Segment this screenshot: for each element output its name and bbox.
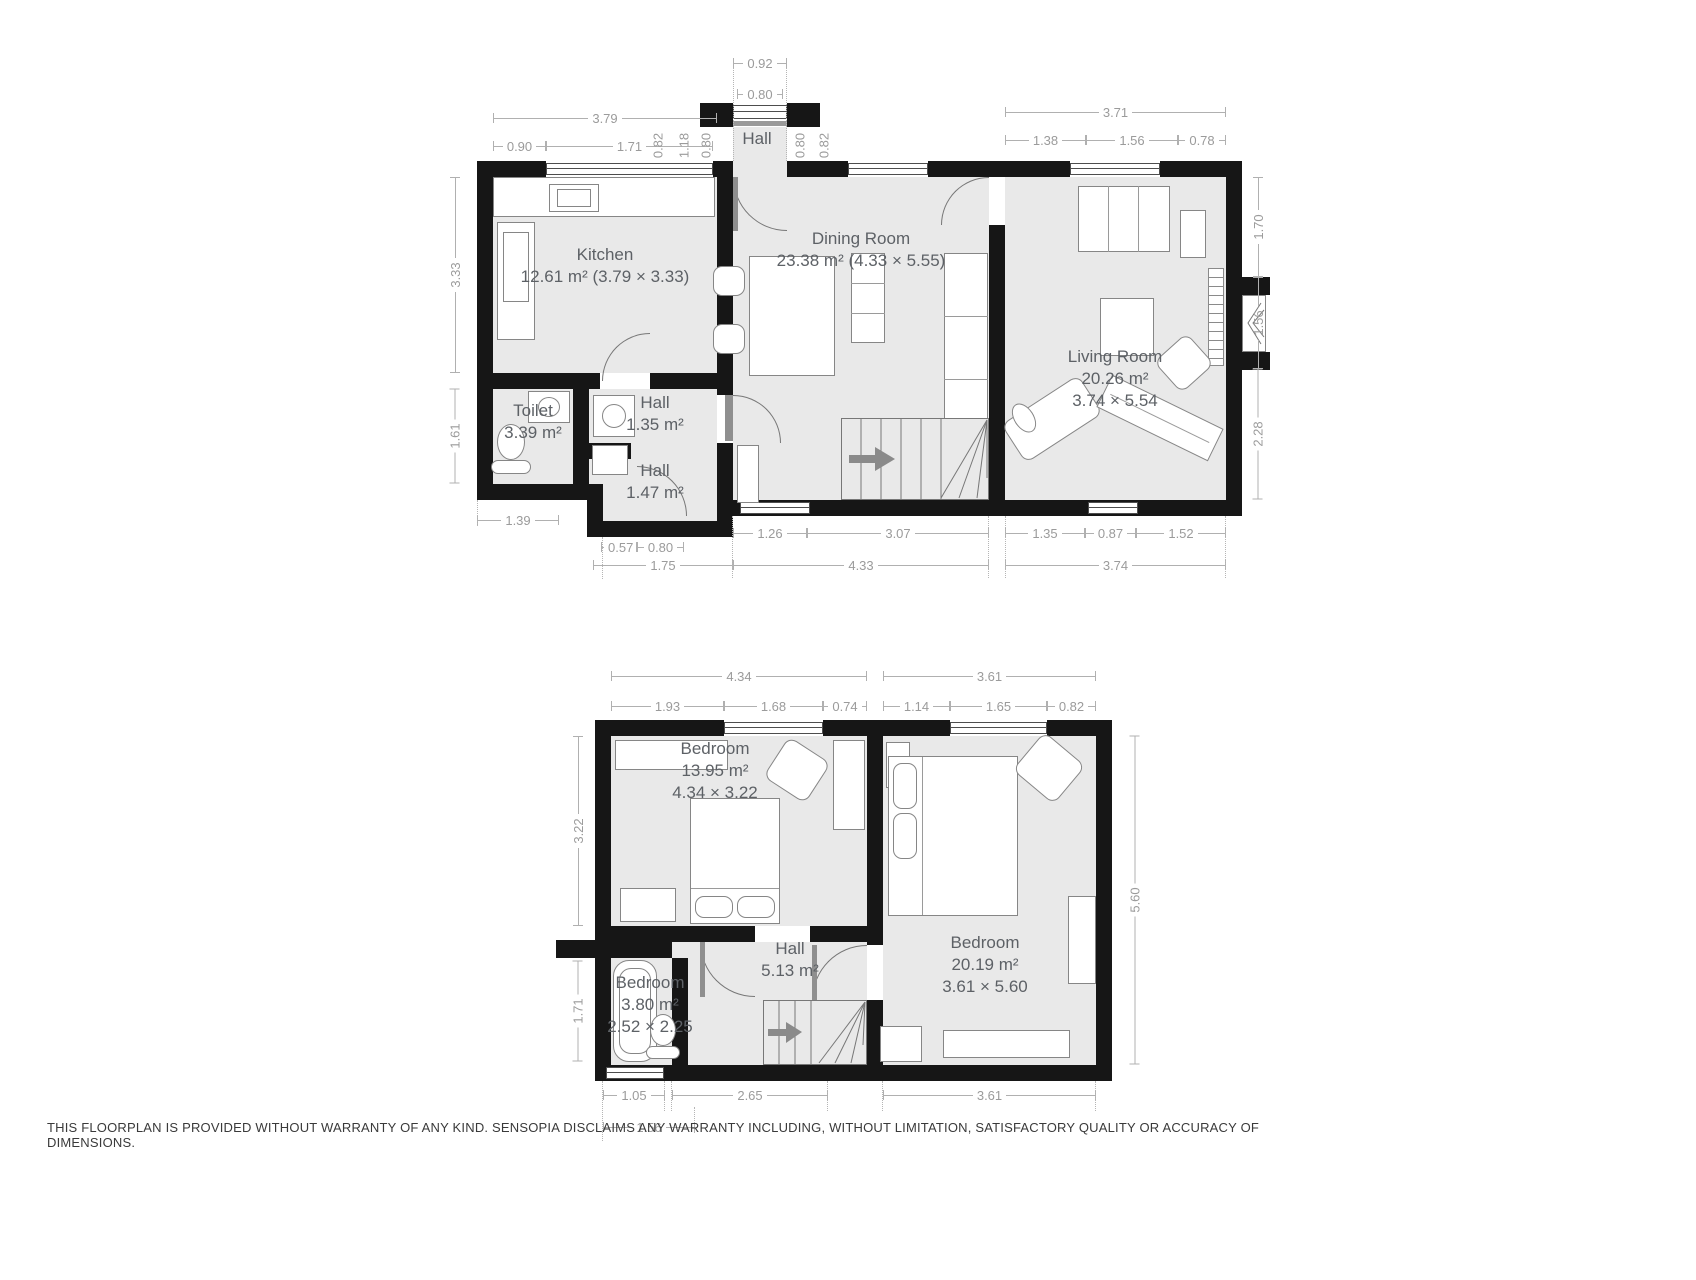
cabinet-line	[944, 379, 988, 380]
wall	[493, 373, 600, 389]
tall-cabinet	[944, 253, 988, 443]
dim-toilet-w: 1.39	[477, 512, 559, 528]
dim-d1: 1.05	[603, 1087, 665, 1103]
label-hall2: Hall 1.47 m²	[626, 460, 684, 504]
door-leaf	[733, 177, 738, 231]
window	[950, 722, 1047, 734]
dim-p2: 0.82	[817, 126, 832, 166]
dim-u-total1: 4.34	[611, 668, 867, 684]
dim-p1: 0.80	[793, 126, 808, 166]
extension-line	[882, 1081, 883, 1111]
wall	[1226, 161, 1242, 516]
room-area: 3.39 m²	[504, 422, 562, 444]
label-dining: Dining Room 23.38 m² (4.33 × 5.55)	[777, 228, 946, 272]
label-toilet: Toilet 3.39 m²	[504, 400, 562, 444]
dim-porch-inner: 0.80	[737, 86, 783, 102]
room-area: 3.80 m²	[607, 994, 693, 1016]
dim-u1: 1.93	[611, 698, 724, 714]
window	[1070, 163, 1160, 175]
extension-line	[602, 537, 603, 579]
pillow	[893, 763, 917, 809]
sofa-line	[1108, 186, 1109, 252]
dim-u3: 0.74	[823, 698, 867, 714]
dim-b7: 1.52	[1136, 525, 1226, 541]
door-leaf	[700, 942, 705, 997]
wall	[477, 161, 493, 500]
extension-line	[827, 1081, 828, 1111]
pillow	[695, 896, 733, 918]
room-name: Bedroom	[607, 972, 693, 994]
label-living: Living Room 20.26 m² 3.74 × 5.54	[1068, 346, 1163, 412]
dim-u2: 1.68	[724, 698, 823, 714]
extension-line	[671, 1081, 672, 1111]
room-size: 3.61 × 5.60	[942, 976, 1028, 998]
sofa	[1078, 186, 1170, 252]
dim-d3: 3.61	[883, 1087, 1096, 1103]
room-name: Bedroom	[942, 932, 1028, 954]
wall	[650, 373, 717, 389]
floorplan-page: Hall Kitchen 12.61 m² (3.79 × 3.33) Dini…	[0, 0, 1696, 1280]
wall	[928, 161, 1070, 177]
staircase	[841, 418, 989, 500]
dim-u-right1: 5.60	[1127, 736, 1143, 1065]
ottoman	[880, 1026, 922, 1062]
hall-cupboard	[592, 445, 628, 475]
dim-u5: 1.65	[950, 698, 1047, 714]
bed-line	[922, 757, 923, 915]
window	[1088, 502, 1138, 514]
room-area: 13.95 m²	[672, 760, 758, 782]
dim-b4: 3.07	[807, 525, 989, 541]
room-name: Kitchen	[521, 244, 690, 266]
room-area: 20.19 m²	[942, 954, 1028, 976]
extension-line	[988, 516, 989, 578]
wall	[823, 720, 950, 736]
window	[724, 722, 823, 734]
door-leaf	[725, 395, 733, 441]
label-bath: Bedroom 3.80 m² 2.52 × 2.25	[607, 972, 693, 1038]
wall	[595, 926, 755, 942]
dim-b3: 1.26	[733, 525, 807, 541]
sideboard-line	[851, 283, 885, 284]
wall	[595, 1065, 1112, 1081]
stair-cupboard	[737, 445, 759, 503]
dim-u-left1: 3.22	[570, 736, 586, 926]
dim-b5: 1.35	[1005, 525, 1085, 541]
kitchen-counter	[493, 177, 715, 217]
room-area: 20.26 m²	[1068, 368, 1163, 390]
dim-left2: 1.61	[447, 389, 463, 484]
disclaimer-text: THIS FLOORPLAN IS PROVIDED WITHOUT WARRA…	[47, 1120, 1347, 1150]
dim-bt3: 3.74	[1005, 557, 1226, 573]
toilet-base-icon	[646, 1046, 680, 1059]
room-name: Hall	[626, 460, 684, 482]
desk	[833, 740, 865, 830]
dim-d2: 2.65	[672, 1087, 828, 1103]
dim-bt2: 4.33	[733, 557, 989, 573]
room-name: Living Room	[1068, 346, 1163, 368]
dining-table	[749, 256, 835, 376]
dim-u6: 0.82	[1047, 698, 1096, 714]
dresser	[1068, 896, 1096, 984]
extension-line	[1225, 516, 1226, 578]
dim-lv1: 1.38	[1005, 132, 1086, 148]
sideboard-line	[851, 313, 885, 314]
dim-k5: 0.80	[699, 126, 714, 166]
dim-right3: 2.28	[1250, 369, 1266, 500]
dim-lv2: 1.56	[1086, 132, 1178, 148]
entry-lintel	[733, 121, 787, 126]
dim-b6: 0.87	[1085, 525, 1136, 541]
window	[848, 163, 928, 175]
sofa-line	[1138, 186, 1139, 252]
dim-b1: 0.57	[601, 539, 637, 555]
room-name: Bedroom	[672, 738, 758, 760]
dim-kitchen-total: 3.79	[493, 110, 717, 126]
wall	[595, 942, 672, 958]
kitchen-sink-basin	[557, 189, 591, 207]
pillow	[893, 813, 917, 859]
cabinet-line	[944, 316, 988, 317]
window	[606, 1067, 664, 1079]
label-bedroom1: Bedroom 13.95 m² 4.34 × 3.22	[672, 738, 758, 804]
dim-lv3: 0.78	[1178, 132, 1226, 148]
room-name: Dining Room	[777, 228, 946, 250]
room-name: Toilet	[504, 400, 562, 422]
dim-right2: 1.56	[1250, 277, 1266, 369]
wall	[713, 161, 733, 177]
label-hall1: Hall 1.35 m²	[626, 392, 684, 436]
pillow	[737, 896, 775, 918]
room-name: Hall	[761, 938, 819, 960]
room-name: Hall	[626, 392, 684, 414]
wall	[989, 225, 1005, 500]
room-area: 5.13 m²	[761, 960, 819, 982]
dim-bt1: 1.75	[593, 557, 733, 573]
wall	[867, 720, 883, 945]
room-name: Hall	[742, 128, 771, 150]
room-size: 3.74 × 5.54	[1068, 390, 1163, 412]
wall	[595, 720, 724, 736]
extension-line	[1005, 516, 1006, 578]
dim-k3: 0.82	[651, 126, 666, 166]
low-shelf	[943, 1030, 1070, 1058]
extension-line	[477, 500, 478, 526]
radiator	[1208, 268, 1224, 366]
wall	[556, 940, 595, 958]
extension-line	[786, 68, 787, 161]
room-area: 12.61 m² (3.79 × 3.33)	[521, 266, 690, 288]
room-size: 2.52 × 2.25	[607, 1016, 693, 1038]
dim-k4: 1.18	[677, 126, 692, 166]
dim-right1: 1.70	[1250, 177, 1266, 277]
dim-left1: 3.33	[447, 177, 463, 373]
extension-line	[733, 68, 734, 161]
dim-u-total2: 3.61	[883, 668, 1096, 684]
entry-door	[733, 105, 787, 119]
room-area: 1.47 m²	[626, 482, 684, 504]
dim-living-total: 3.71	[1005, 104, 1226, 120]
porch-wall	[787, 103, 820, 127]
label-upper-hall: Hall 5.13 m²	[761, 938, 819, 982]
room-area: 1.35 m²	[626, 414, 684, 436]
wall	[1096, 720, 1112, 1081]
wall	[573, 389, 589, 500]
dining-chair	[713, 266, 745, 296]
cabinet	[620, 888, 676, 922]
dim-b2: 0.80	[637, 539, 684, 555]
label-entry-hall: Hall	[742, 128, 771, 150]
staircase	[763, 1000, 867, 1065]
washer-door	[602, 404, 626, 428]
dining-chair	[713, 324, 745, 354]
extension-line	[732, 516, 733, 578]
extension-line	[664, 1081, 665, 1111]
dim-u-left2: 1.71	[570, 961, 586, 1062]
room-size: 4.34 × 3.22	[672, 782, 758, 804]
dim-u4: 1.14	[883, 698, 950, 714]
bed-line	[691, 888, 779, 889]
toilet-base-icon	[491, 460, 531, 474]
extension-line	[1095, 1081, 1096, 1111]
room-area: 23.38 m² (4.33 × 5.55)	[777, 250, 946, 272]
dim-k1: 0.90	[493, 138, 546, 154]
label-kitchen: Kitchen 12.61 m² (3.79 × 3.33)	[521, 244, 690, 288]
wall	[587, 521, 733, 537]
window	[740, 502, 810, 514]
side-cabinet	[1180, 210, 1206, 258]
dim-porch-outer: 0.92	[733, 55, 787, 71]
label-bedroom2: Bedroom 20.19 m² 3.61 × 5.60	[942, 932, 1028, 998]
wall	[717, 443, 733, 521]
